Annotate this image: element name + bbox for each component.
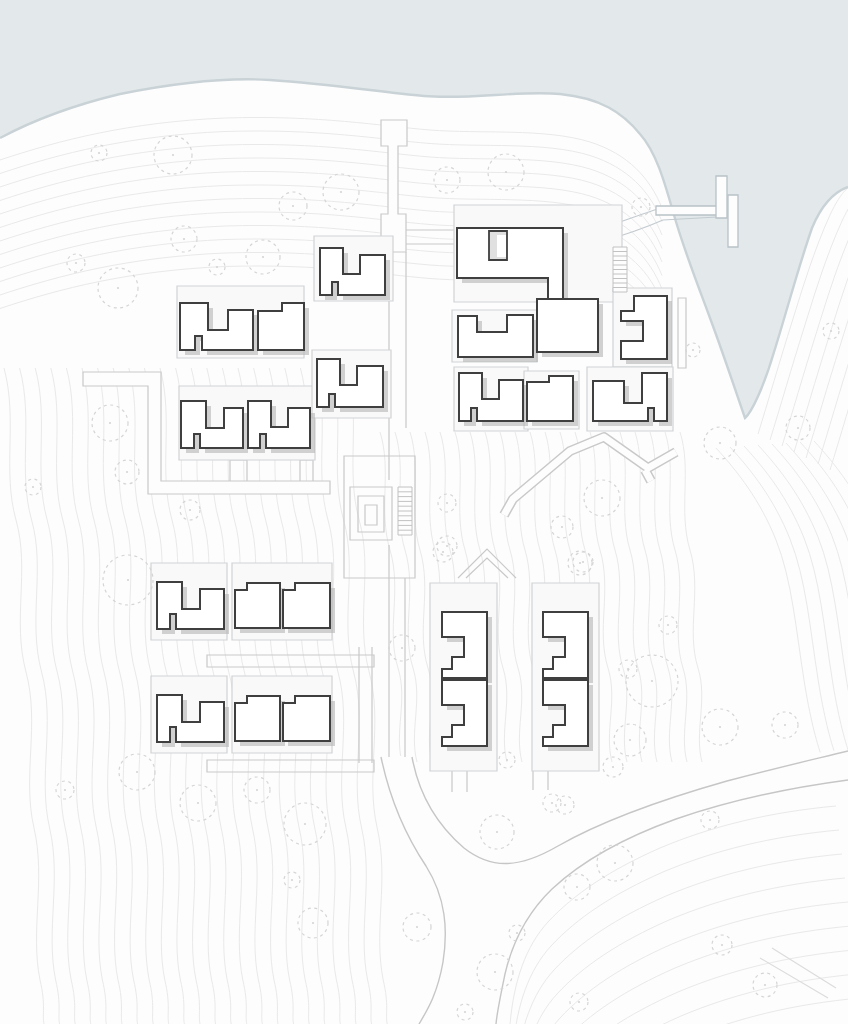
- tree-center-dot: [75, 262, 77, 264]
- tree-center-dot: [576, 886, 578, 888]
- tree-center-dot: [561, 526, 563, 528]
- tree-center-dot: [494, 971, 496, 973]
- tree-center-dot: [505, 171, 507, 173]
- tree-center-dot: [464, 1011, 466, 1013]
- tree-center-dot: [98, 152, 100, 154]
- tree-center-dot: [216, 266, 218, 268]
- tree-center-dot: [197, 802, 199, 804]
- tree-center-dot: [830, 330, 832, 332]
- tree-center-dot: [667, 624, 669, 626]
- tree-center-dot: [582, 561, 584, 563]
- tree-center-dot: [692, 349, 694, 351]
- tree-center-dot: [506, 759, 508, 761]
- tree-center-dot: [446, 545, 448, 547]
- tree-center-dot: [292, 205, 294, 207]
- tree-center-dot: [719, 726, 721, 728]
- tree-center-dot: [446, 502, 448, 504]
- tree-center-dot: [401, 647, 403, 649]
- tree-center-dot: [256, 789, 258, 791]
- pier-deck: [728, 195, 738, 247]
- tree-center-dot: [797, 427, 799, 429]
- tree-center-dot: [516, 932, 518, 934]
- tree-center-dot: [172, 154, 174, 156]
- tree-center-dot: [117, 287, 119, 289]
- tree-center-dot: [721, 944, 723, 946]
- site-plan-canvas: [0, 0, 848, 1024]
- tree-center-dot: [579, 562, 581, 564]
- tree-center-dot: [304, 823, 306, 825]
- tree-center-dot: [446, 179, 448, 181]
- tree-center-dot: [614, 862, 616, 864]
- tree-center-dot: [764, 984, 766, 986]
- tree-center-dot: [496, 831, 498, 833]
- tree-center-dot: [189, 509, 191, 511]
- tree-center-dot: [784, 724, 786, 726]
- tree-center-dot: [601, 497, 603, 499]
- tree-center-dot: [629, 739, 631, 741]
- tree-center-dot: [578, 1001, 580, 1003]
- tree-center-dot: [109, 422, 111, 424]
- tree-center-dot: [183, 238, 185, 240]
- building-ne-s2: [527, 376, 573, 421]
- tree-center-dot: [612, 766, 614, 768]
- tree-center-dot: [291, 879, 293, 881]
- tree-center-dot: [127, 579, 129, 581]
- tree-center-dot: [416, 926, 418, 928]
- tree-center-dot: [651, 680, 653, 682]
- tree-center-dot: [312, 922, 314, 924]
- building-sw-2: [235, 583, 280, 628]
- tree-center-dot: [340, 191, 342, 193]
- building-ne-square: [537, 299, 598, 352]
- building-sw-6: [283, 696, 330, 741]
- building-nw-2: [258, 303, 304, 350]
- site-plan-page: [0, 0, 848, 1024]
- pier-deck: [656, 206, 718, 215]
- tree-center-dot: [551, 802, 553, 804]
- building-sw-5: [235, 696, 280, 741]
- building-sw-3: [283, 583, 330, 628]
- tree-center-dot: [262, 256, 264, 258]
- tree-center-dot: [719, 442, 721, 444]
- pier-deck: [716, 176, 727, 218]
- tree-center-dot: [64, 789, 66, 791]
- tree-center-dot: [564, 804, 566, 806]
- tree-center-dot: [126, 471, 128, 473]
- tree-center-dot: [32, 486, 34, 488]
- tree-center-dot: [136, 771, 138, 773]
- courtyard-floor: [497, 235, 506, 257]
- tree-center-dot: [709, 819, 711, 821]
- tree-center-dot: [442, 551, 444, 553]
- tree-center-dot: [640, 206, 642, 208]
